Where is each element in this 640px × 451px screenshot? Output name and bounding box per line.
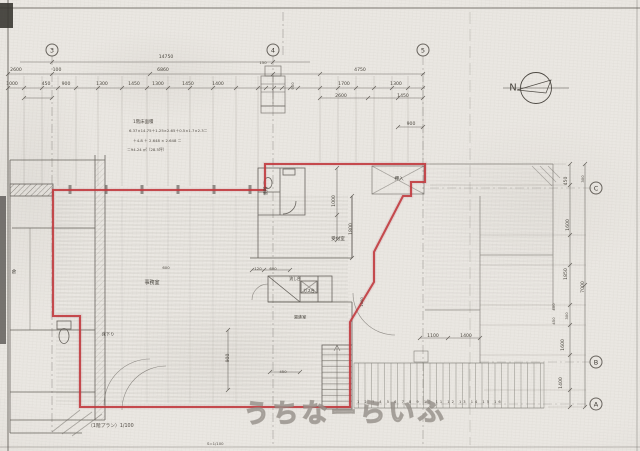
dimension-text: 600 [162,266,169,270]
dimension-text: 1600 [561,339,566,351]
dimension-text: 450 [279,370,286,374]
dimension-text: 1700 [338,82,350,87]
room-label: 便所 [264,187,268,196]
dimension-text: 450 [564,177,569,186]
grid-bubble: 3 [46,44,59,57]
note-text: ＋4.8 ＋ 2.648 × 2.648 ＝ [133,139,181,143]
dimension-text: 1300 [390,82,402,87]
grid-bubble: 4 [267,44,280,57]
dimension-text: 900 [407,122,416,127]
dimension-text: 1400 [460,334,472,339]
dimension-text: 7000 [581,281,586,293]
room-label: 流し台 [289,277,300,281]
floorplan-canvas: 345CBA 147502600100686047501501000450900… [0,0,640,451]
dimension-text: 2600 [335,94,347,99]
note-text: 1階床面積 [133,120,153,124]
room-label: 湯沸室 [294,315,307,319]
dimension-text: 1100 [427,334,439,339]
dimension-text: 2600 [10,68,22,73]
room-label: 事務室 [145,281,160,286]
dimension-text: 150 [259,61,266,65]
dimension-text: 900 [62,82,71,87]
dimension-text: 6860 [157,68,169,73]
dimension-text: 1000 [360,297,364,307]
dimension-text: 300 [581,175,585,182]
note-text: （1階プラン）1/100 [88,424,134,429]
room-label: 倉 [12,270,17,275]
dimension-text: 1450 [182,82,194,87]
grid-bubble: A [590,398,603,411]
dimension-text: 1400 [212,82,224,87]
dimension-text: 900 [291,82,295,89]
dimension-text: 450 [42,82,51,87]
plan-linework [0,0,640,451]
room-label: 受付室 [331,237,345,242]
grid-bubble: C [590,182,603,195]
dimension-text: 1300 [96,82,108,87]
dimension-text: 900 [226,354,231,363]
dimension-text: 450 [552,317,556,324]
dimension-text: 600 [269,267,276,271]
dimension-text: 100 [53,68,62,73]
north-label: N [509,83,516,94]
dimension-text: 120 [254,267,261,271]
dimension-text: 14750 [159,55,174,60]
room-label: 押入 [394,177,403,182]
dimension-text: 400 [552,303,556,310]
note-text: ＝94.24 ㎡（28.5坪） [127,148,167,152]
dimension-text: 1600 [566,219,571,231]
dimension-text: 1450 [128,82,140,87]
note-text: S=1/100 [207,442,224,446]
room-label: 床下り [102,332,115,336]
dimension-text: 1850 [564,268,569,280]
watermark-text: うちなーらいふ [243,391,446,430]
room-label: ガス台 [303,289,314,293]
dimension-text: 1000 [6,82,18,87]
grid-bubble: 5 [417,44,430,57]
dimension-text: 1300 [152,82,164,87]
dimension-text: 1800 [349,223,354,235]
dimension-text: 1450 [397,94,409,99]
grid-bubble: B [590,356,603,369]
dimension-text: 1400 [559,377,564,389]
dimension-text: 300 [565,312,569,319]
dimension-text: 4750 [354,68,366,73]
note-text: 6.37×14.75＋1.25×2.65＋0.5×1.7×2.3＝ [129,129,207,133]
dimension-text: 1000 [332,195,337,207]
